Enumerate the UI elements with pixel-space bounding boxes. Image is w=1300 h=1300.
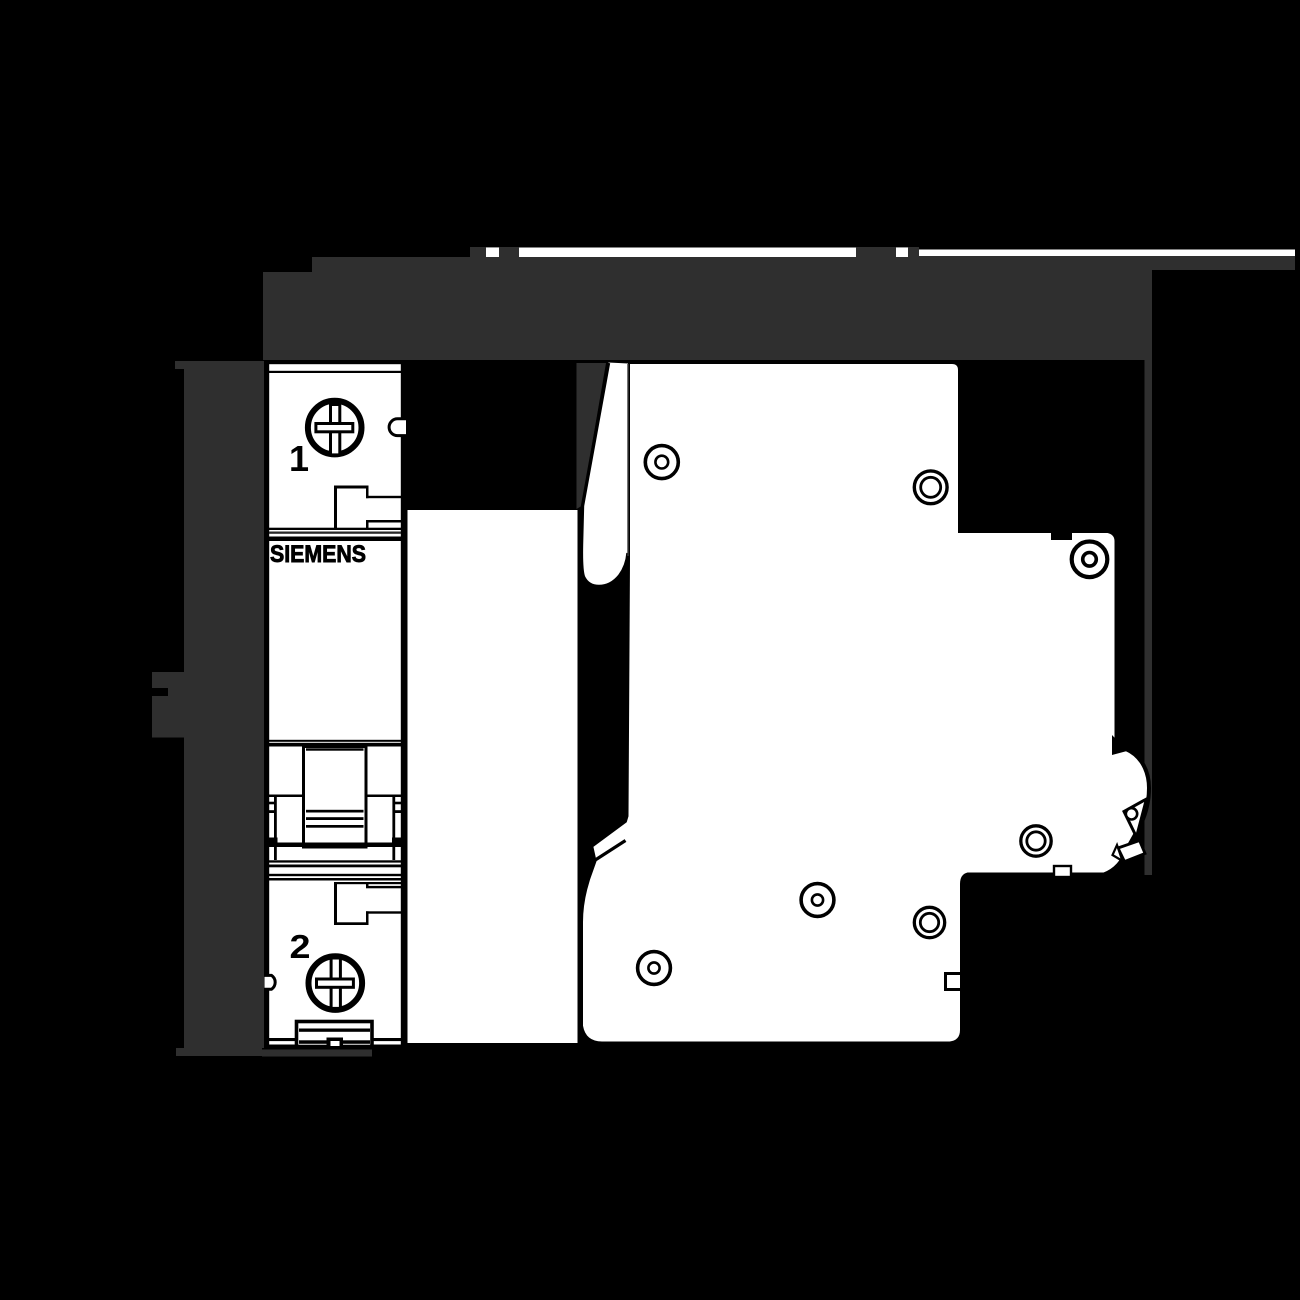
svg-text:SIEMENS: SIEMENS bbox=[270, 541, 366, 568]
svg-text:1: 1 bbox=[289, 438, 309, 479]
svg-text:2: 2 bbox=[290, 928, 311, 965]
